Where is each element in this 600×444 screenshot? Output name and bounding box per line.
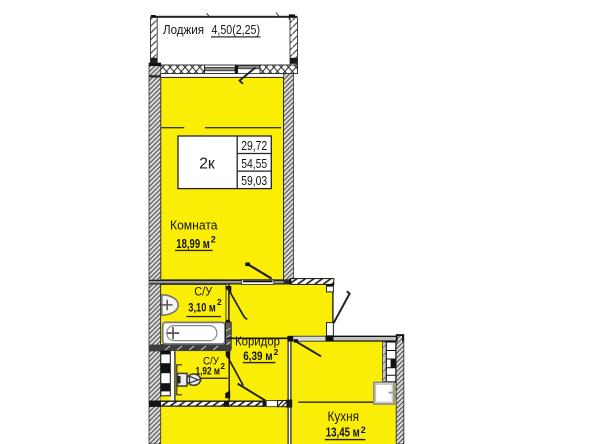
- svg-text:2: 2: [217, 297, 222, 307]
- svg-text:С/У: С/У: [194, 287, 213, 299]
- svg-text:59,03: 59,03: [241, 173, 267, 188]
- svg-text:2к: 2к: [199, 156, 215, 173]
- svg-text:Кухня: Кухня: [328, 409, 360, 424]
- svg-text:2: 2: [274, 347, 279, 357]
- svg-text:3,10 м: 3,10 м: [188, 302, 216, 314]
- svg-text:2: 2: [361, 425, 366, 435]
- svg-text:29,72: 29,72: [241, 138, 267, 153]
- svg-text:2: 2: [221, 362, 226, 371]
- svg-text:13,45 м: 13,45 м: [326, 426, 360, 440]
- svg-text:54,55: 54,55: [241, 156, 267, 171]
- svg-text:6,39 м: 6,39 м: [243, 349, 272, 363]
- svg-text:4,50(2,25): 4,50(2,25): [212, 22, 261, 37]
- svg-text:Комната: Комната: [170, 218, 218, 233]
- svg-text:2: 2: [211, 235, 216, 245]
- svg-text:18,99 м: 18,99 м: [176, 237, 210, 251]
- svg-text:Лоджия: Лоджия: [163, 22, 204, 37]
